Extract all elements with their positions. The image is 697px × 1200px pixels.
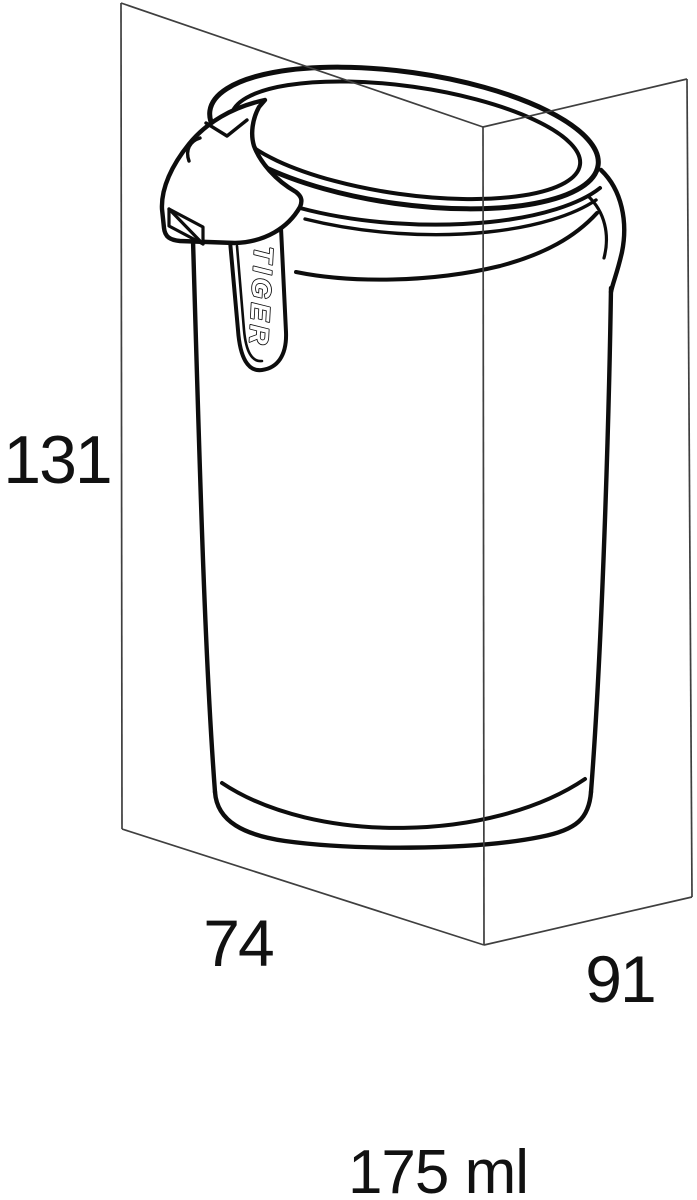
volume-label: 175 ml [316, 1142, 560, 1200]
box-edge-front [483, 127, 484, 945]
brand-label: TIGER [243, 245, 278, 349]
dispenser-drawing: TIGER [0, 0, 697, 1200]
depth-dimension-label: 91 [568, 946, 672, 1012]
box-edge-bottom-right [484, 897, 692, 945]
box-edge-right [687, 79, 692, 897]
width-dimension-label: 74 [186, 910, 290, 976]
dimension-diagram: TIGER 131 74 91 175 ml [0, 0, 697, 1200]
height-dimension-label: 131 [0, 426, 116, 494]
box-edge-left [121, 3, 122, 829]
